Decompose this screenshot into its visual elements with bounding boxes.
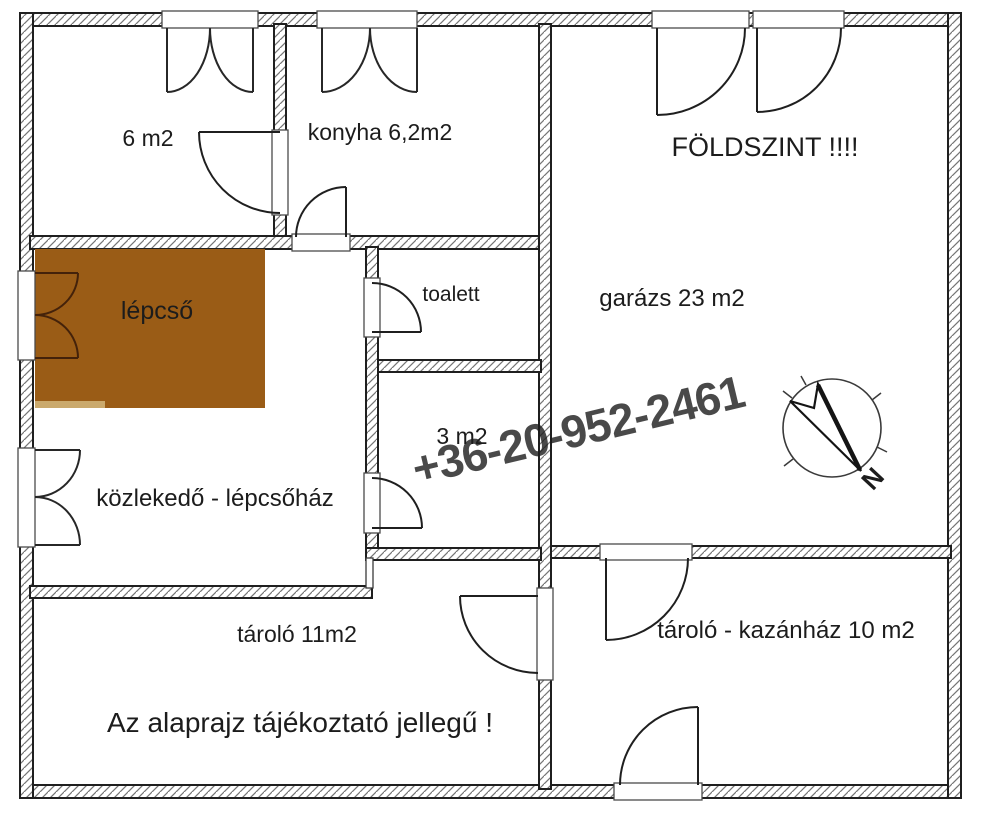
door-kitchen-hallway [296, 187, 346, 237]
door-storage [460, 596, 538, 673]
garage-entry-door-2 [757, 28, 841, 112]
window-left-hallway [35, 450, 80, 545]
label-toilet: toalett [422, 283, 479, 306]
window-top-kitchen [322, 28, 417, 92]
door-boiler-exterior [620, 707, 698, 785]
door-small-room-kitchen [199, 132, 280, 213]
label-small-room: 6 m2 [122, 125, 173, 151]
label-disclaimer: Az alaprajz tájékoztató jellegű ! [107, 707, 493, 738]
label-stairs: lépcső [121, 297, 193, 325]
floor-plan-canvas: N 6 m2 konyha 6,2m2 FÖLDSZINT !!!! garáz… [0, 0, 1000, 818]
floor-plan-page: N 6 m2 konyha 6,2m2 FÖLDSZINT !!!! garáz… [0, 0, 1000, 818]
label-kitchen: konyha 6,2m2 [308, 119, 452, 145]
stairs-edge-strip [35, 401, 105, 408]
label-floor-title: FÖLDSZINT !!!! [671, 132, 858, 162]
label-hallway: közlekedő - lépcsőház [96, 485, 333, 512]
garage-entry-door-1 [657, 28, 745, 115]
window-top-small-room [167, 28, 253, 92]
label-garage: garázs 23 m2 [599, 285, 744, 312]
label-storage: tároló 11m2 [237, 621, 357, 647]
compass-rose: N [783, 376, 890, 496]
label-boiler-storage: tároló - kazánház 10 m2 [657, 617, 914, 644]
